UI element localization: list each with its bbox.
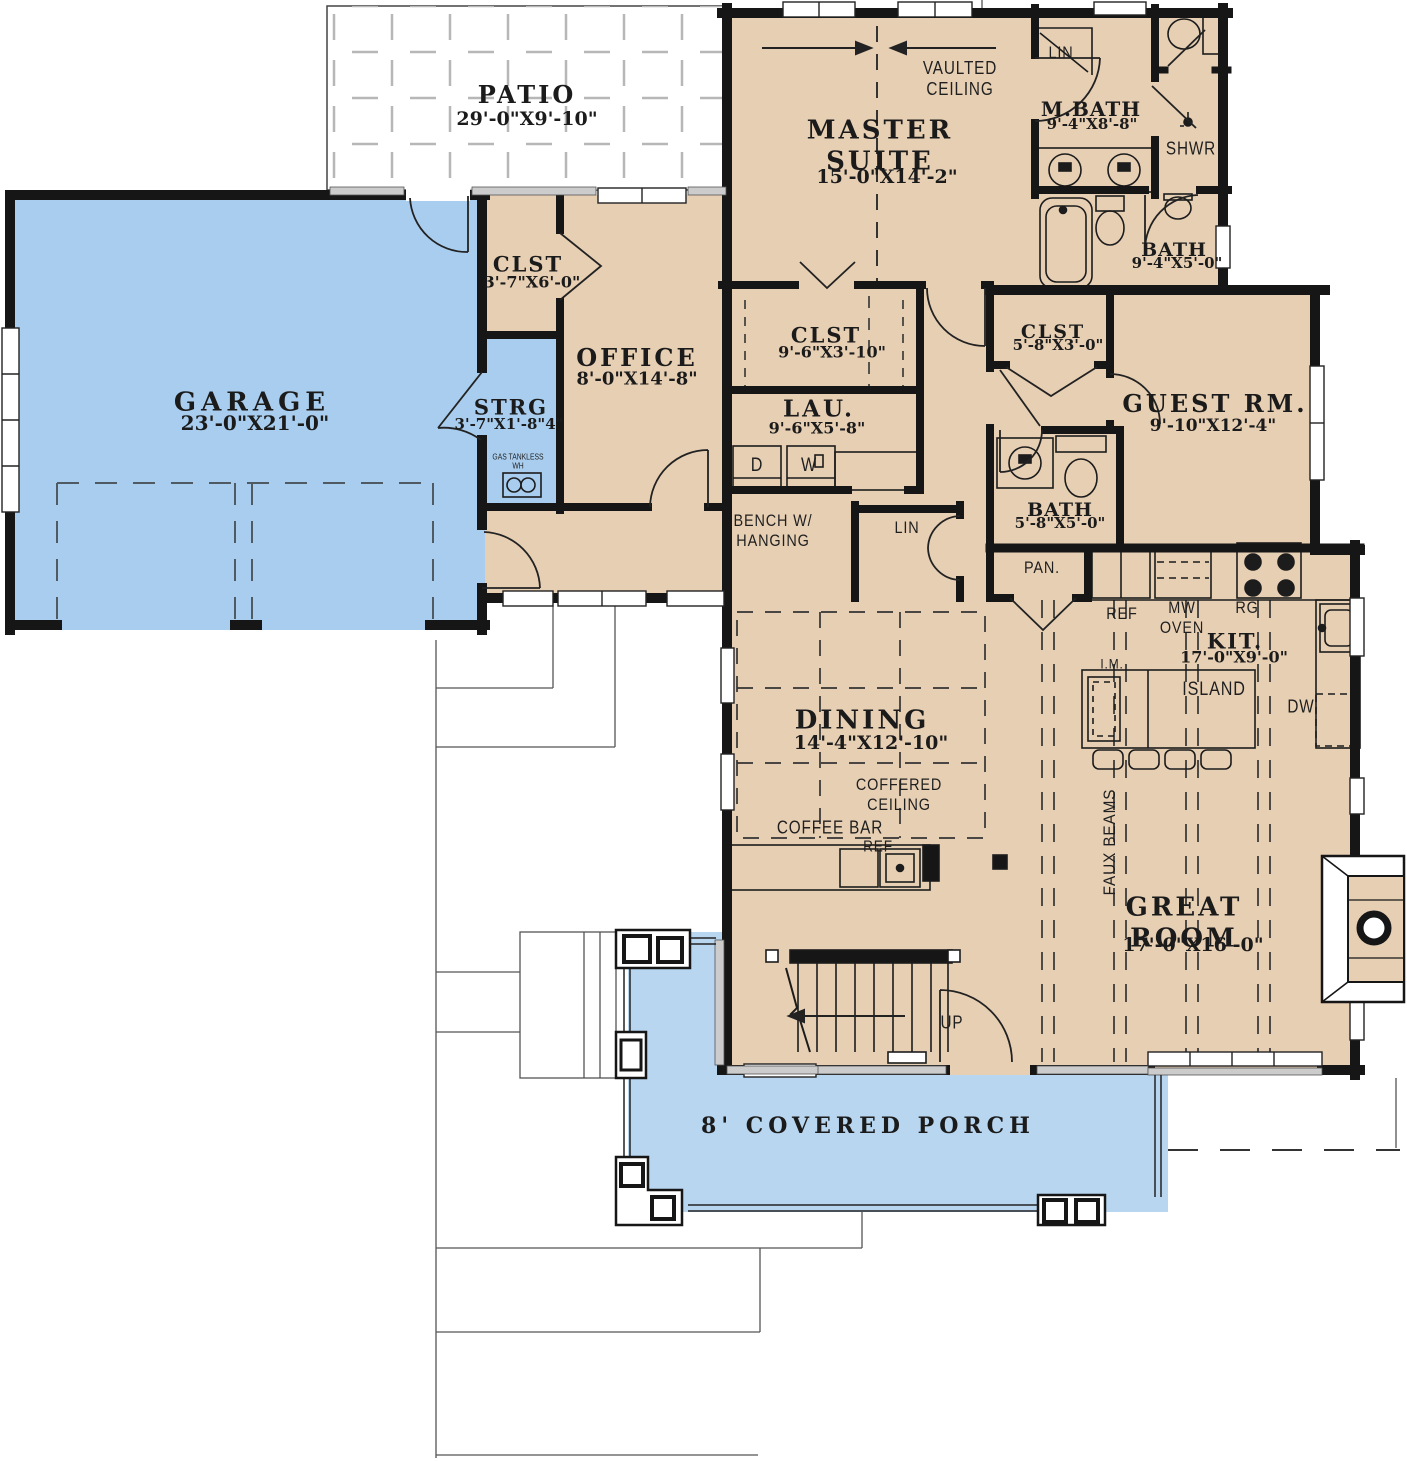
window (2, 328, 19, 512)
window (667, 591, 724, 606)
window (598, 188, 686, 203)
fireplace (1322, 856, 1404, 1002)
window (1094, 2, 1146, 15)
window (1310, 366, 1324, 480)
window (558, 591, 646, 606)
fireplace-flue-icon (1360, 914, 1388, 942)
window (503, 591, 553, 606)
storage-floor (485, 335, 560, 510)
window (721, 754, 734, 810)
garage-floor (10, 195, 485, 630)
post (993, 855, 1007, 869)
floor-plan-drawing (0, 0, 1407, 1461)
window (783, 2, 855, 17)
sliding-door (1148, 1052, 1322, 1066)
wall-stub (923, 845, 939, 881)
window (1216, 226, 1230, 268)
window (1350, 1000, 1364, 1040)
window (898, 2, 972, 17)
patio-door-opening (406, 186, 470, 201)
patio-surface (327, 6, 731, 190)
window (1350, 598, 1364, 656)
window (1350, 778, 1364, 814)
floor-plan: PATIO 29'-0"X9'-10" MASTER SUITE 15'-0"X… (0, 0, 1407, 1461)
window (721, 648, 734, 703)
